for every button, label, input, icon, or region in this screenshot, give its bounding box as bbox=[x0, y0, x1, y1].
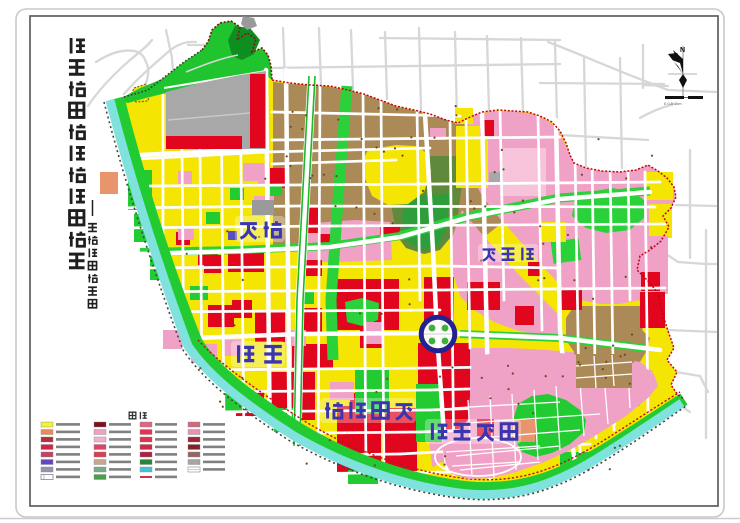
svg-text:N: N bbox=[680, 47, 685, 54]
svg-text:0 0.5 1km: 0 0.5 1km bbox=[664, 101, 682, 106]
